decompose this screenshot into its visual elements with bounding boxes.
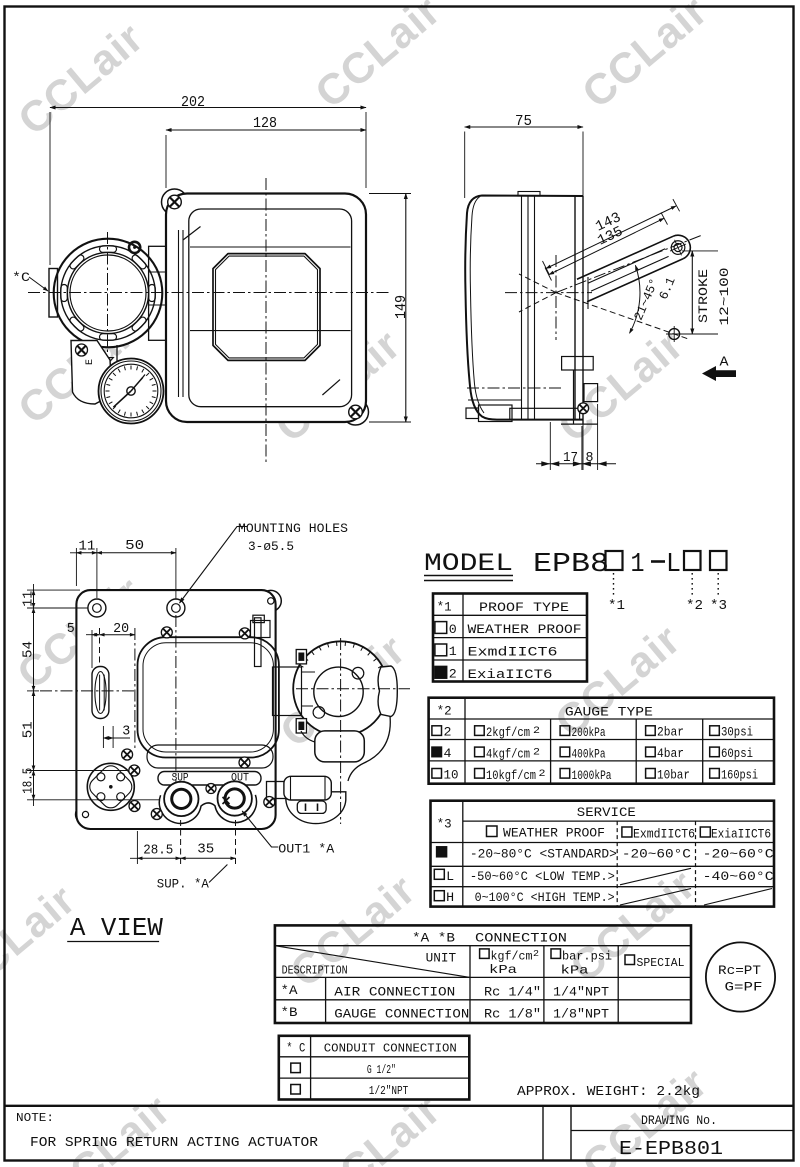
svg-text:2bar: 2bar <box>657 725 684 740</box>
svg-text:G=PF: G=PF <box>725 979 763 994</box>
svg-text:DRAWING No.: DRAWING No. <box>641 1114 717 1128</box>
svg-text:4: 4 <box>444 746 452 761</box>
svg-text:60psi: 60psi <box>721 746 753 761</box>
svg-text:CONDUIT CONNECTION: CONDUIT CONNECTION <box>324 1042 457 1056</box>
svg-text:10: 10 <box>444 768 459 783</box>
svg-text:*2: *2 <box>686 599 703 614</box>
svg-text:FOR SPRING RETURN ACTING ACTUA: FOR SPRING RETURN ACTING ACTUATOR <box>30 1136 318 1151</box>
svg-text:WEATHER PROOF: WEATHER PROOF <box>468 622 582 637</box>
svg-text:CONNECTION: CONNECTION <box>475 931 567 946</box>
svg-text:400kPa: 400kPa <box>572 746 606 761</box>
svg-text:2: 2 <box>533 949 539 959</box>
svg-text:21~45°: 21~45° <box>632 277 662 323</box>
svg-text:G 1/2": G 1/2" <box>367 1063 396 1077</box>
svg-text:*B: *B <box>281 1005 298 1020</box>
svg-text:E: E <box>85 359 96 365</box>
svg-text:ExmdIICT6: ExmdIICT6 <box>468 645 558 660</box>
svg-text:*A: *A <box>281 983 298 998</box>
svg-text:4kgf/cm: 4kgf/cm <box>486 746 530 761</box>
svg-text:1/2"NPT: 1/2"NPT <box>369 1084 409 1098</box>
svg-text:0~100°C <HIGH TEMP.>: 0~100°C <HIGH TEMP.> <box>475 890 615 905</box>
svg-text:MOUNTING HOLES: MOUNTING HOLES <box>238 521 348 536</box>
svg-text:-50~60°C <LOW TEMP.>: -50~60°C <LOW TEMP.> <box>470 869 615 884</box>
svg-text:A: A <box>720 356 730 371</box>
svg-text:10bar: 10bar <box>657 768 690 783</box>
svg-text:202: 202 <box>181 95 205 111</box>
svg-text:PROOF TYPE: PROOF TYPE <box>479 600 569 615</box>
svg-text:SERVICE: SERVICE <box>577 805 636 820</box>
svg-text:A VIEW: A VIEW <box>70 913 163 943</box>
svg-text:30psi: 30psi <box>721 725 753 740</box>
svg-text:2: 2 <box>533 747 540 758</box>
svg-text:200kPa: 200kPa <box>572 725 606 740</box>
svg-text:17: 17 <box>563 451 578 466</box>
svg-text:51: 51 <box>21 721 36 738</box>
svg-text:SUP: SUP <box>172 772 189 784</box>
svg-text:L: L <box>666 550 681 580</box>
svg-text:149: 149 <box>394 295 410 319</box>
svg-text:ExiaIICT6: ExiaIICT6 <box>468 667 553 682</box>
svg-text:*1: *1 <box>608 599 625 614</box>
svg-text:1: 1 <box>449 644 457 659</box>
svg-text:1: 1 <box>631 550 645 580</box>
svg-text:bar.psi: bar.psi <box>562 950 612 964</box>
svg-text:Rc=PT: Rc=PT <box>718 963 761 978</box>
svg-text:54: 54 <box>21 641 36 658</box>
svg-text:3-ø5.5: 3-ø5.5 <box>248 539 294 554</box>
svg-text:GAUGE TYPE: GAUGE TYPE <box>565 704 653 719</box>
svg-text:kPa: kPa <box>489 963 517 977</box>
svg-text:H: H <box>446 890 454 905</box>
svg-text:-20~60°C: -20~60°C <box>703 847 774 862</box>
svg-text:2kgf/cm: 2kgf/cm <box>486 725 530 740</box>
svg-text:OUT: OUT <box>231 772 249 784</box>
svg-text:0: 0 <box>449 622 457 637</box>
svg-text:DESCRIPTION: DESCRIPTION <box>282 964 348 978</box>
svg-text:35: 35 <box>197 842 214 857</box>
svg-text:ExiaIICT6: ExiaIICT6 <box>711 827 771 842</box>
svg-text:160psi: 160psi <box>721 768 758 783</box>
svg-text:1/4"NPT: 1/4"NPT <box>553 985 609 1000</box>
svg-text:6.1: 6.1 <box>657 275 679 302</box>
svg-text:11: 11 <box>21 591 36 607</box>
svg-text:EPB8: EPB8 <box>533 550 609 580</box>
svg-text:128: 128 <box>253 116 277 132</box>
svg-text:STROKE: STROKE <box>696 269 711 323</box>
svg-text:*C: *C <box>12 270 30 285</box>
svg-text:2: 2 <box>444 725 452 740</box>
svg-text:-20~60°C: -20~60°C <box>622 847 691 862</box>
svg-text:-20~80°C <STANDARD>: -20~80°C <STANDARD> <box>470 847 617 862</box>
svg-text:* C: * C <box>286 1041 305 1056</box>
svg-text:12~100: 12~100 <box>717 268 732 326</box>
svg-text:5: 5 <box>67 622 75 637</box>
svg-text:kPa: kPa <box>561 964 589 978</box>
svg-text:18.5: 18.5 <box>21 768 36 794</box>
svg-text:4bar: 4bar <box>657 746 684 761</box>
svg-text:8: 8 <box>586 451 594 466</box>
svg-text:3: 3 <box>122 725 130 740</box>
svg-text:WEATHER PROOF: WEATHER PROOF <box>503 826 605 841</box>
svg-text:28.5: 28.5 <box>143 843 173 858</box>
svg-text:APPROX. WEIGHT: 2.2kg: APPROX. WEIGHT: 2.2kg <box>517 1084 700 1100</box>
svg-text:75: 75 <box>515 114 532 130</box>
svg-text:*1: *1 <box>437 600 452 615</box>
svg-text:L: L <box>446 869 454 884</box>
svg-text:OUT1 *A: OUT1 *A <box>278 841 334 856</box>
svg-text:*2: *2 <box>437 704 452 719</box>
svg-text:UNIT: UNIT <box>426 951 457 966</box>
svg-text:ExmdIICT6: ExmdIICT6 <box>633 827 695 842</box>
svg-text:11: 11 <box>78 540 95 555</box>
svg-text:10kgf/cm: 10kgf/cm <box>486 768 536 783</box>
svg-text:*A *B: *A *B <box>412 931 455 946</box>
svg-text:*3: *3 <box>710 599 727 614</box>
svg-text:SPECIAL: SPECIAL <box>637 956 685 970</box>
svg-text:20: 20 <box>113 622 129 637</box>
svg-text:-40~60°C: -40~60°C <box>703 869 774 884</box>
svg-text:SUP. *A: SUP. *A <box>157 877 209 892</box>
svg-text:2: 2 <box>533 726 540 737</box>
svg-text:Rc 1/8": Rc 1/8" <box>484 1007 541 1022</box>
svg-text:MODEL: MODEL <box>424 549 513 578</box>
svg-text:kgf/cm: kgf/cm <box>491 950 533 964</box>
svg-text:Rc 1/4": Rc 1/4" <box>484 985 541 1000</box>
svg-text:E-EPB801: E-EPB801 <box>619 1138 723 1160</box>
svg-text:GAUGE CONNECTION: GAUGE CONNECTION <box>334 1007 469 1022</box>
svg-text:1/8"NPT: 1/8"NPT <box>553 1007 609 1022</box>
svg-text:1000kPa: 1000kPa <box>572 768 612 783</box>
svg-text:50: 50 <box>125 539 144 554</box>
svg-text:NOTE:: NOTE: <box>16 1111 54 1125</box>
svg-text:AIR CONNECTION: AIR CONNECTION <box>334 985 455 1000</box>
svg-text:2: 2 <box>449 667 457 682</box>
svg-text:*3: *3 <box>437 817 452 832</box>
svg-text:2: 2 <box>539 769 546 780</box>
